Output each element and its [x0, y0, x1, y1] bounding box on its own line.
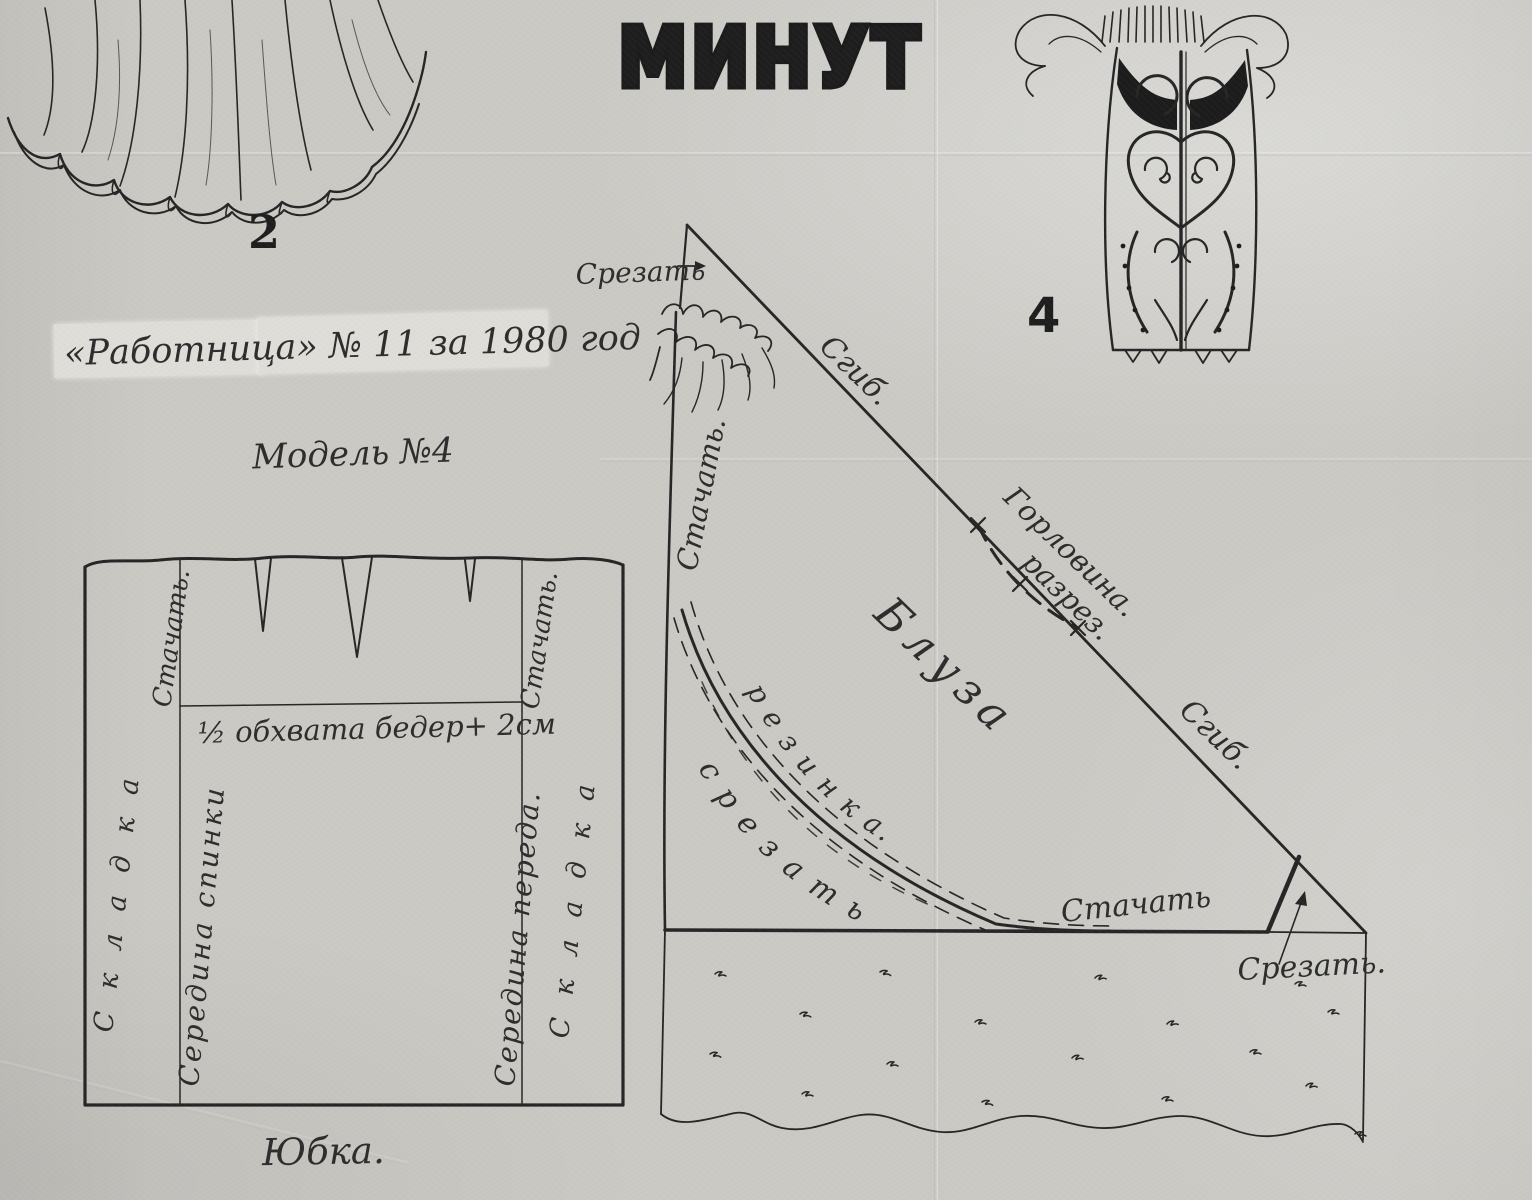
page-title-text: МИНУТ [618, 11, 923, 106]
figure-2-illustration: 2 [0, 0, 432, 268]
skirt-pleat-left-label: С к л а д к а [88, 770, 146, 1034]
skirt-center-back-label: Середина спинки [172, 784, 231, 1088]
cuff-bottom-fringe [1125, 350, 1237, 363]
skirt-hip-measure-label: ½ обхвата бедер+ 2см [197, 707, 556, 750]
figure-4-illustration: 4 [1005, 0, 1297, 368]
ruffle-hem [8, 52, 426, 223]
ruffle-fold-lines [44, 0, 413, 200]
cuff-fringe [1102, 6, 1204, 42]
skirt-center-front-label: Середина переда. [488, 789, 547, 1087]
blouse-name-label: Блуза [864, 587, 1027, 747]
figure-2-label: 2 [248, 205, 280, 259]
blouse-fold-lower-label: Сгиб. [1172, 693, 1258, 777]
skirt-stitch-left-label: Стачать. [147, 567, 196, 709]
corner-cut [1268, 857, 1307, 964]
skirt-inner-lines [180, 558, 522, 1105]
page-title: МИНУТ [608, 6, 948, 110]
figure-4-label: 4 [1027, 288, 1060, 344]
blouse-stitch-bottom-label: Стачать [1059, 879, 1212, 930]
skirt-darts [255, 557, 475, 657]
cut-arrow-head-icon [1295, 891, 1307, 906]
blouse-cut-top-label: Срезать [575, 253, 706, 291]
neck-ruffle [650, 304, 775, 412]
scanned-pattern-sheet: МИНУТ 2 «Ра [0, 0, 1532, 1200]
blouse-cut-corner-label: Срезать. [1237, 945, 1387, 988]
blouse-stitch-side-label: Стачать. [669, 415, 732, 573]
skirt-caption: Юбка. [262, 1129, 385, 1174]
model-line: Модель №4 [251, 430, 454, 477]
fabric-marks [710, 970, 1366, 1136]
